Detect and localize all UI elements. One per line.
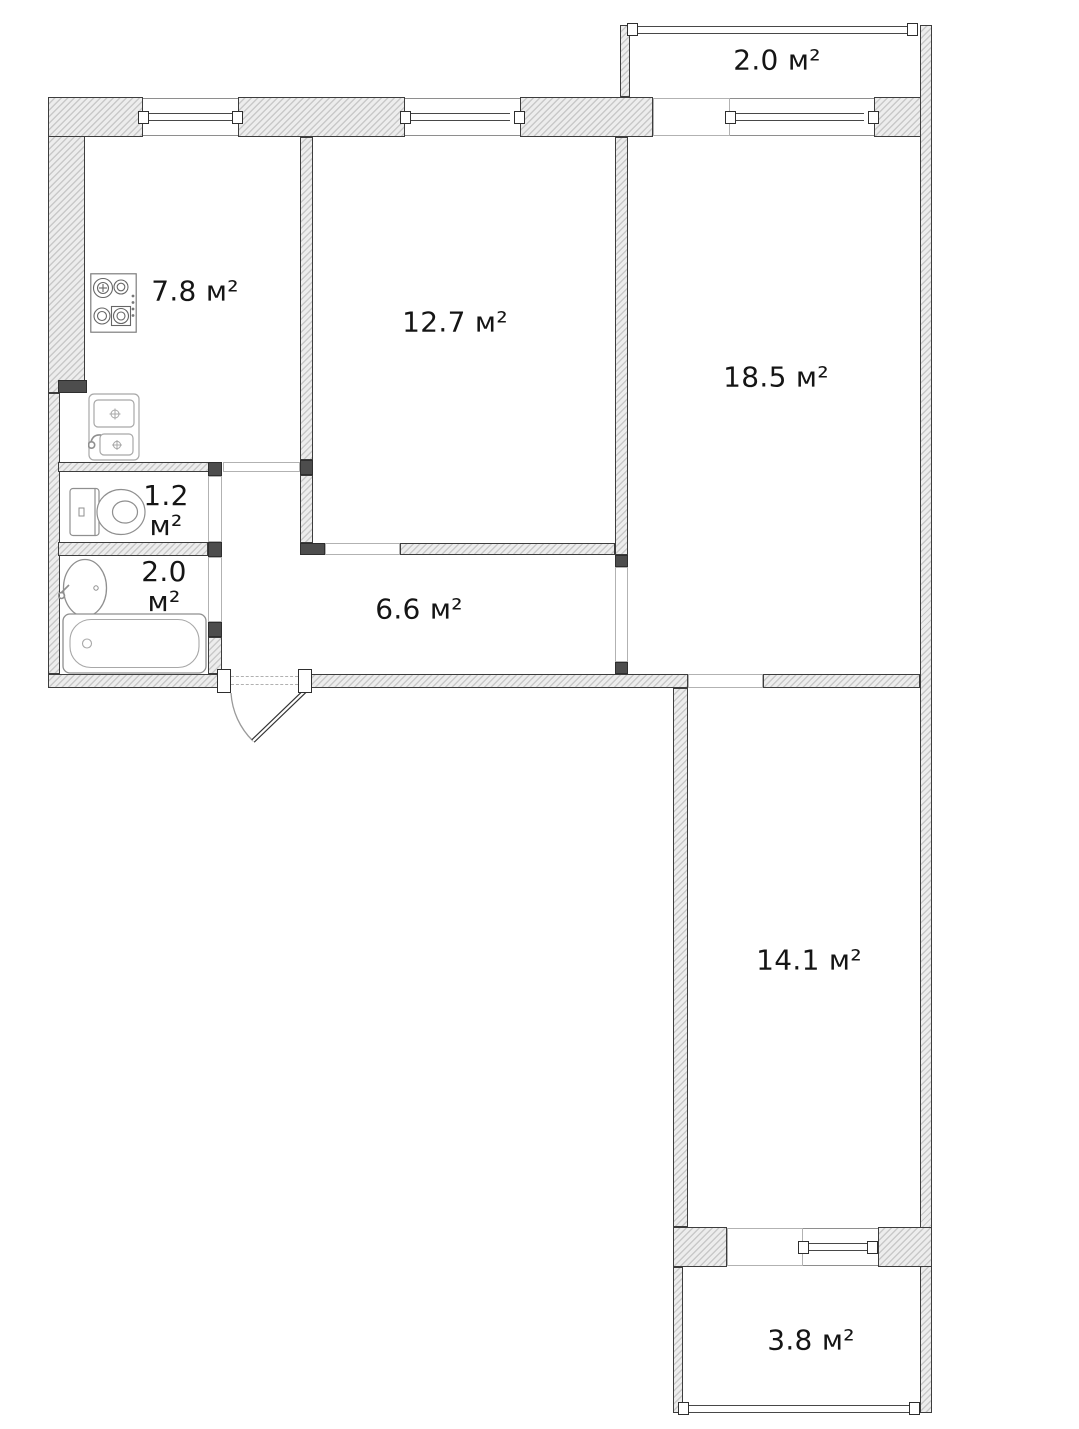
wc-area-value: 1.2 [143,481,188,511]
wall-balcony-bottom-left [673,1267,683,1413]
wall-room141-bottom-right [878,1227,932,1267]
wall-left-thin [48,393,60,674]
window-frame-end [798,1241,809,1254]
wall-kitchen-bottom [58,462,210,472]
wall-jamb-kitchen-door [300,460,313,475]
wall-jamb-hall185-bottom [615,662,628,674]
wall-bottom-mid [308,674,688,688]
wall-jamb-hall185-top [615,555,628,567]
bathroom-area-unit: м² [148,587,181,617]
window-frame-end [138,111,149,124]
room-label-room-18-5: 18.5 м² [723,361,829,394]
wall-top-a [48,97,143,137]
room-label-room-12-7: 12.7 м² [402,306,508,339]
window-frame-end [868,111,879,124]
door-opening-balcony-top [653,98,730,136]
window-frame-end [232,111,243,124]
window-frame-end [627,23,638,36]
window-room141 [808,1243,868,1251]
wall-left-thick [48,97,85,393]
door-opening-room185 [615,567,628,662]
washbasin-icon [58,557,110,619]
window-kitchen [148,113,233,121]
wall-jamb-wc-top [208,462,222,476]
window-frame-end [678,1402,689,1415]
wall-jamb-room127-door [300,543,325,555]
wall-bottom-right [763,674,920,688]
entrance-door-jamb [217,669,231,693]
room-label-hallway: 6.6 м² [375,593,463,626]
window-balcony-top [632,26,918,34]
wc-area-unit: м² [150,511,183,541]
bathroom-area-value: 2.0 [141,557,186,587]
room-label-balcony-bottom: 3.8 м² [767,1324,855,1357]
wall-room141-bottom-left [673,1227,727,1267]
entrance-door-jamb [298,669,312,693]
wall-right-outer [920,25,932,1413]
door-opening-bathroom [208,557,222,622]
window-room127 [410,113,510,121]
room-label-bathroom: 2.0 м² [141,557,186,617]
kitchen-sink-icon [88,393,140,461]
wall-top-c [520,97,653,137]
window-frame-end [909,1402,920,1415]
room-label-wc: 1.2 м² [143,481,188,541]
wall-bottom-left [48,674,222,688]
wall-room141-left [673,688,688,1227]
wall-top-b [238,97,405,137]
window-frame-end [725,111,736,124]
room-label-kitchen: 7.8 м² [151,275,239,308]
wall-jamb-step [58,380,87,393]
wall-wc-bath-divider [58,542,208,556]
window-frame-end [400,111,411,124]
window-frame-end [907,23,918,36]
door-opening-room141 [688,674,763,688]
wall-kitchen-divider-lower [300,475,313,543]
wall-jamb-wc-bath [208,542,222,557]
room-label-room-14-1: 14.1 м² [756,944,862,977]
wall-hall-185-divider [615,137,628,555]
door-opening-room127 [325,543,400,555]
door-opening-wc [208,476,222,542]
floor-plan: 7.8 м² 12.7 м² 2.0 м² 18.5 м² 1.2 м² 2.0… [0,0,1079,1429]
wall-room127-bottom [400,543,615,555]
bathtub-icon [62,613,207,674]
window-room185 [735,113,864,121]
entrance-door-swing [215,665,335,755]
window-frame-end [514,111,525,124]
wall-jamb-bath-door [208,622,222,637]
room-label-balcony-top: 2.0 м² [733,44,821,77]
door-opening-kitchen [223,462,300,472]
toilet-icon [68,486,148,538]
stove-icon [90,273,137,333]
wall-kitchen-divider-upper [300,137,313,460]
door-opening-balcony-bottom [727,1228,803,1266]
window-balcony-bottom [683,1405,920,1413]
window-frame-end [867,1241,878,1254]
